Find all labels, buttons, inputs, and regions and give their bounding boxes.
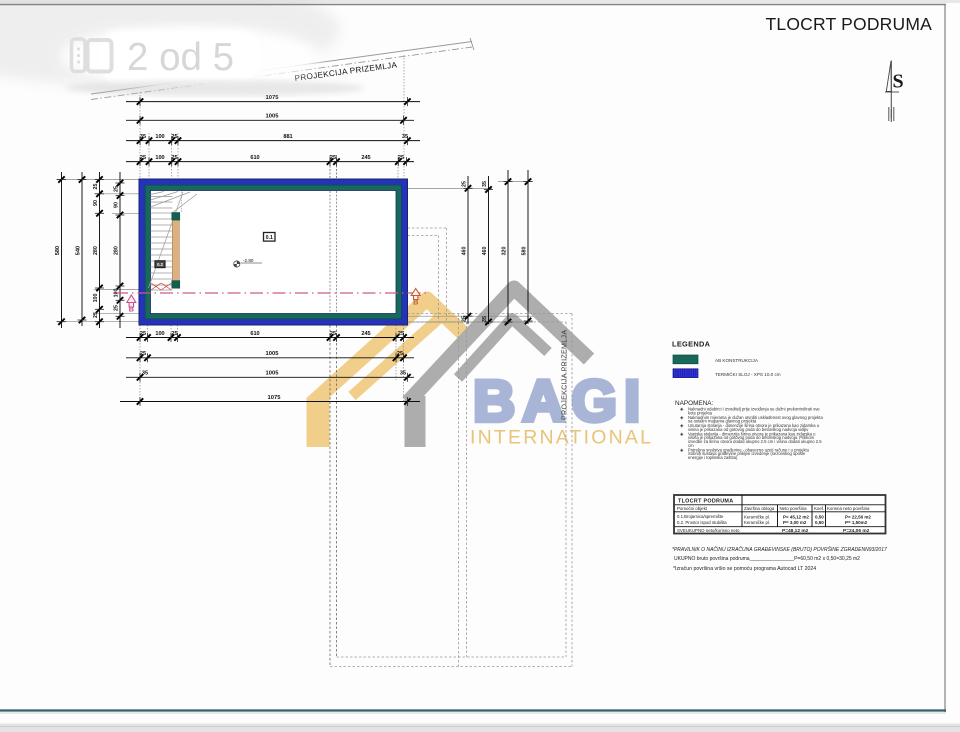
svg-text:2 od 5: 2 od 5 (127, 36, 234, 79)
